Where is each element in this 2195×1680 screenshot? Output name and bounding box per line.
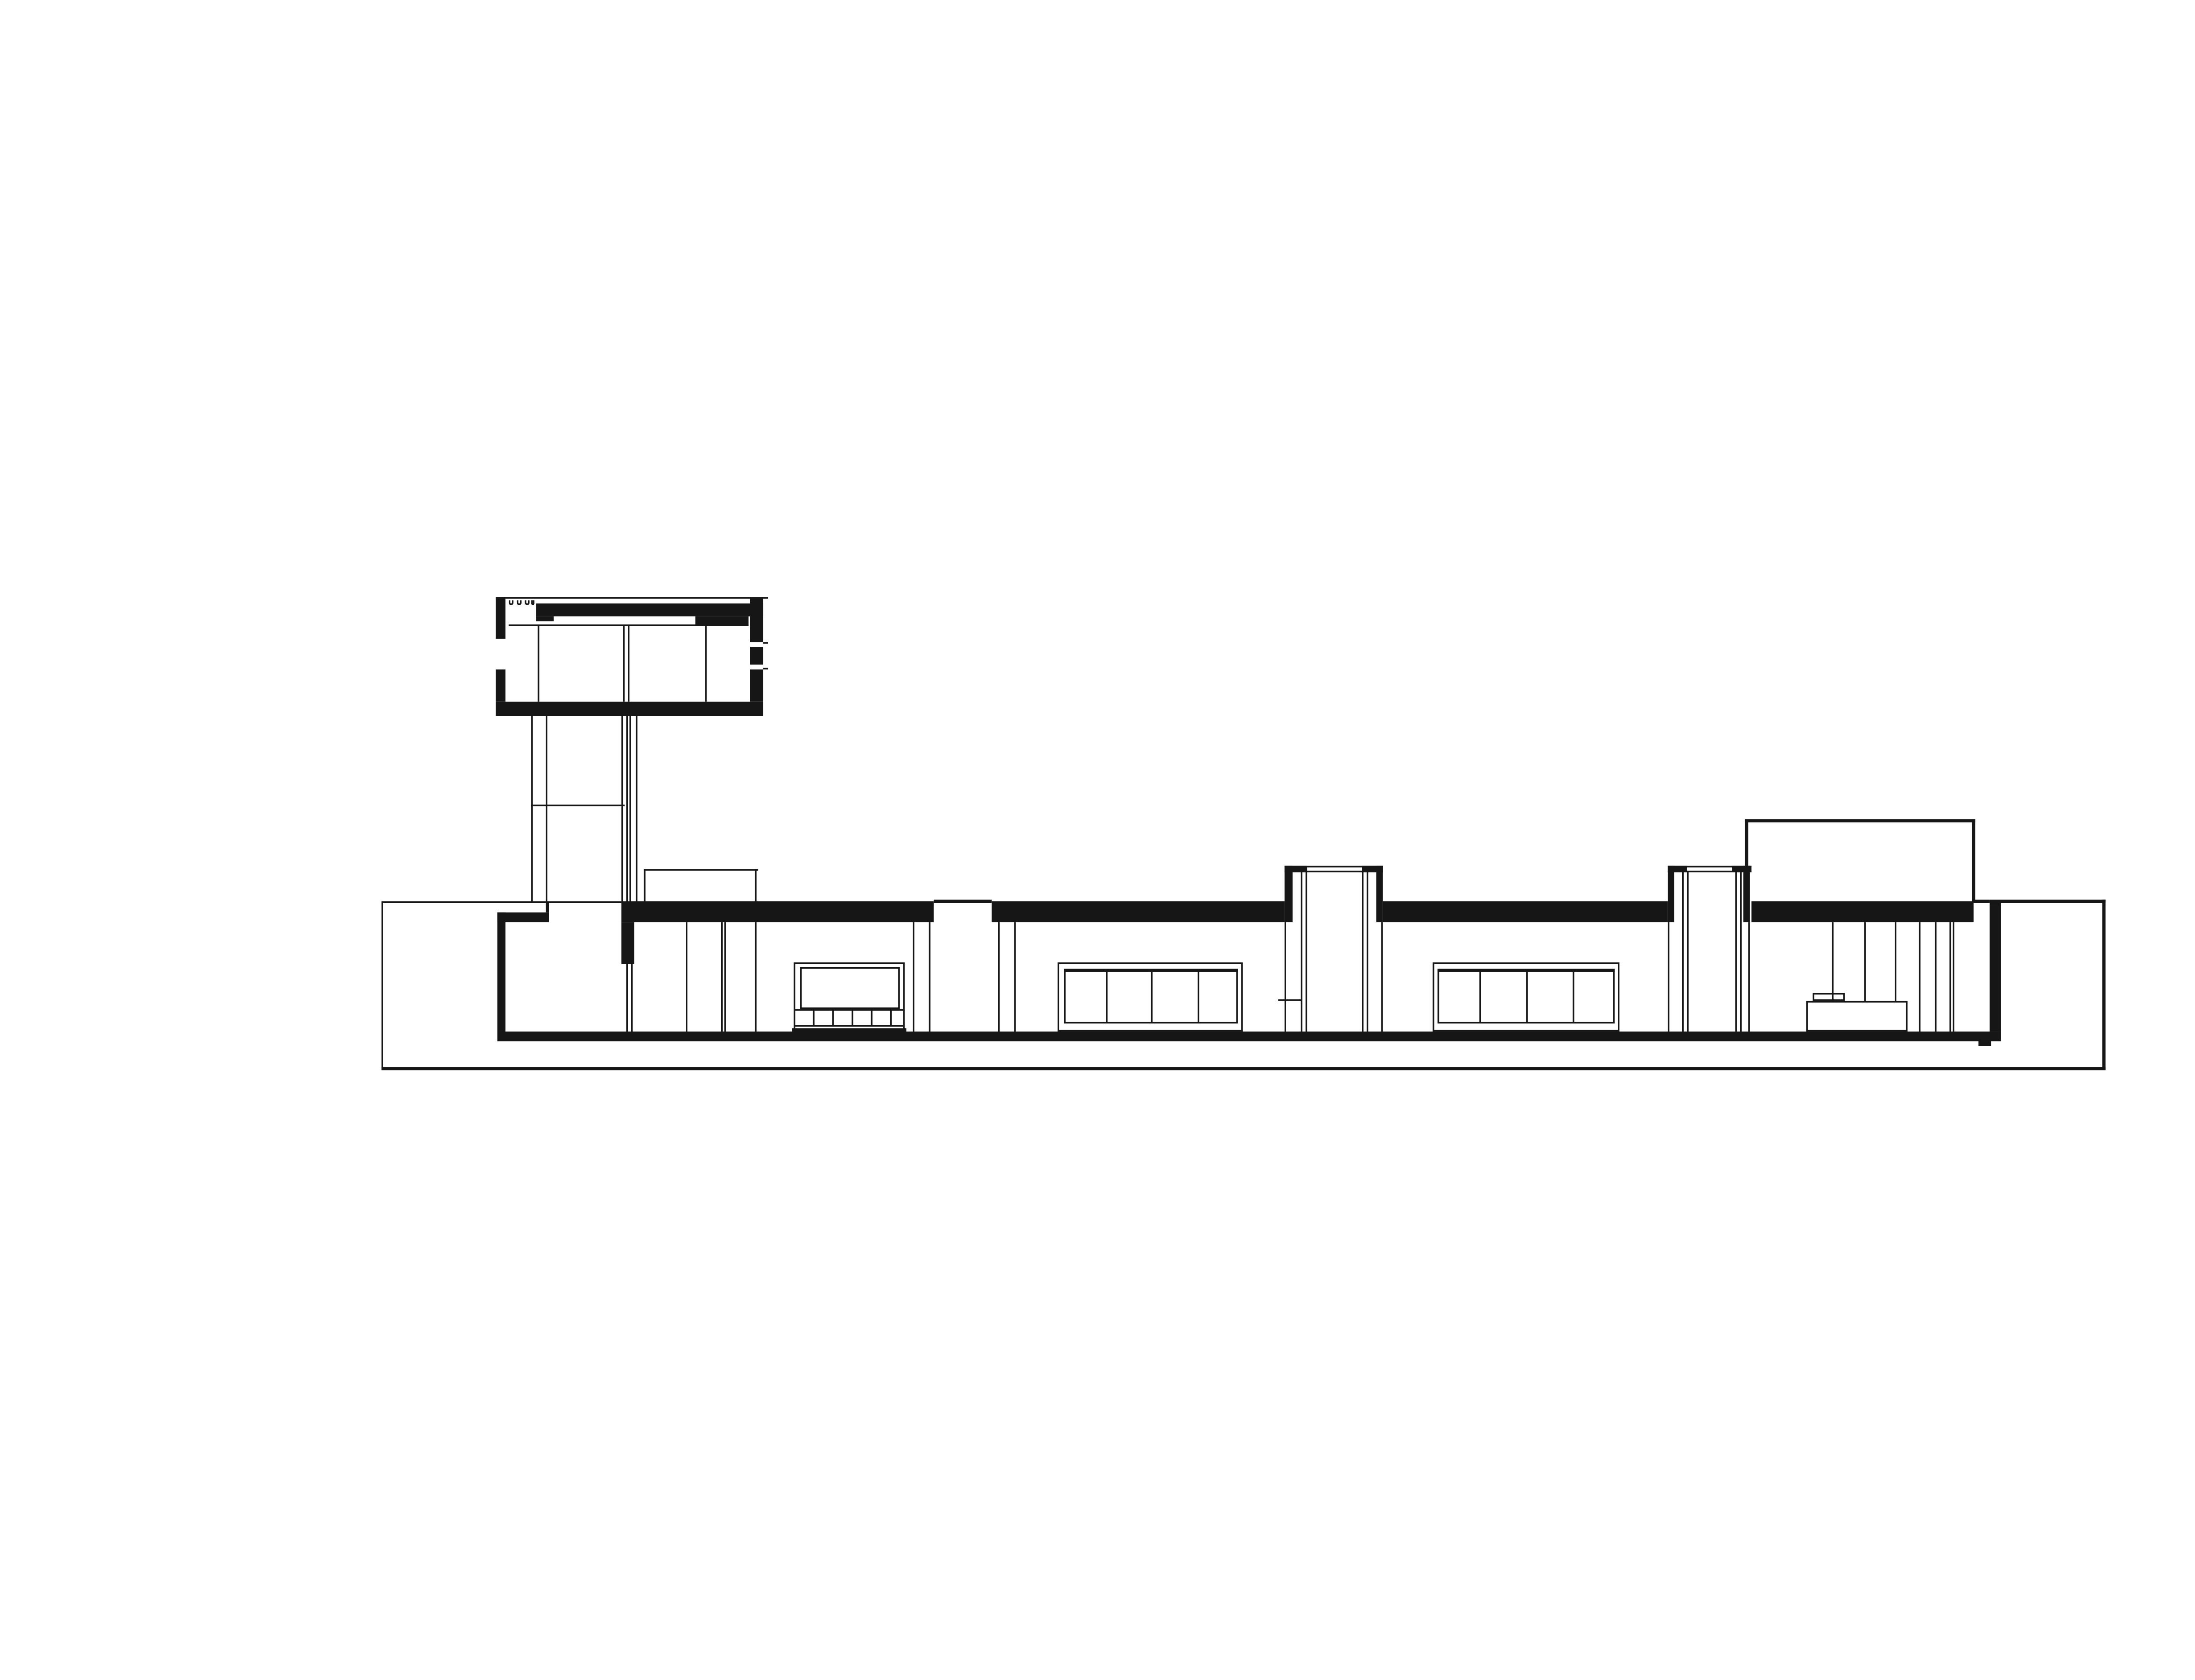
roof-bulkhead-top	[643, 869, 757, 871]
tower-wall-left-lower	[496, 669, 505, 702]
tower-roof-top-line	[496, 597, 768, 599]
roof-block-2-wall-right	[1749, 922, 1750, 1032]
upper-volume-left	[1745, 819, 1748, 865]
window-2-mullion	[1105, 972, 1107, 1023]
right-room-line-4	[1919, 922, 1921, 1032]
courtyard-wall-right	[2102, 900, 2106, 1071]
window-2-inner-frame	[1063, 968, 1237, 1023]
window-1-sill-divider	[890, 1009, 892, 1026]
patio-slot-wall-l1	[912, 922, 914, 1032]
right-room-line-2	[1864, 922, 1866, 1001]
tower-floor-slab	[496, 702, 763, 715]
right-room-line-3	[1895, 922, 1896, 1001]
tower-roof-band	[536, 604, 763, 616]
tower-joist-hook-icon	[509, 600, 513, 606]
right-room-line-6a	[1949, 922, 1950, 1032]
tower-wall-left-upper	[496, 599, 505, 639]
window-2-mullion	[1151, 972, 1153, 1023]
roof-block-2-core-r1	[1736, 872, 1738, 1031]
roof-slab-segment-1	[622, 901, 934, 922]
tower-joist-hook-icon	[517, 600, 522, 606]
upper-volume-right	[1972, 819, 1975, 903]
plinth-bottom-line	[381, 1067, 2105, 1071]
patio-slot-wall-l2	[929, 922, 931, 1032]
plinth-edge-left	[381, 901, 384, 1070]
stair-shaft-core-3	[630, 715, 632, 901]
stair-shaft-landing	[531, 804, 625, 806]
window-1-cabinet-base	[795, 1026, 903, 1027]
window-1-sill-divider	[813, 1009, 815, 1026]
stair-shaft-line-1	[531, 715, 533, 901]
roof-block-1-wall-right	[1381, 922, 1383, 1032]
exterior-wall-left	[497, 912, 505, 1031]
roof-slab-segment-3	[1383, 901, 1668, 922]
interior-partition-b2	[724, 922, 726, 1032]
roofline-over-slot	[934, 900, 991, 902]
window-1-sill-line	[795, 1009, 903, 1011]
left-bay-roof-step	[546, 901, 550, 913]
interior-partition-c	[755, 922, 757, 1032]
entrance-door-line-b	[631, 964, 633, 1031]
roof-slab-segment-2	[991, 901, 1285, 922]
roof-block-1-core-l2	[1306, 872, 1308, 1031]
roof-block-2-core-l1	[1681, 872, 1683, 1031]
stair-shaft-core-1	[622, 715, 623, 901]
window-1-sill-divider	[871, 1009, 873, 1026]
tower-wall-right-lower	[749, 669, 763, 702]
right-room-line-6b	[1952, 922, 1954, 1032]
entrance-door-line-a	[626, 964, 628, 1031]
patio-slot-wall-r2	[1014, 922, 1015, 1032]
roof-block-2-bar-left	[1668, 865, 1675, 921]
tower-core-line-b	[628, 626, 630, 702]
courtyard-wall-top	[1990, 900, 2105, 903]
window-1-sill-divider	[832, 1009, 834, 1026]
right-room-line-5	[1935, 922, 1937, 1032]
roof-block-1-bar-left	[1285, 865, 1292, 921]
stair-shaft-core-4	[635, 715, 637, 901]
tower-wall-right-upper	[749, 599, 763, 643]
roof-block-2-bar-right	[1744, 865, 1751, 921]
interior-partition-a	[686, 922, 687, 1032]
roof-block-1-core-l1	[1301, 872, 1303, 1031]
bench-top-box	[1813, 993, 1845, 1002]
window-3-head-bar	[1438, 968, 1614, 972]
window-1-sill-divider	[852, 1009, 853, 1026]
window-1-base-lip	[792, 1028, 906, 1031]
tower-roof-band-foot	[536, 616, 554, 621]
window-3-mullion	[1526, 972, 1527, 1023]
window-1-pane	[799, 967, 899, 1009]
roof-block-1-core-r1	[1362, 872, 1364, 1031]
roof-block-2-core-r2	[1741, 872, 1742, 1031]
floor-foundation-step	[1979, 1041, 1992, 1045]
floor-slab	[497, 1031, 2001, 1041]
roof-block-2-wall-left	[1668, 922, 1670, 1032]
bench	[1806, 1001, 1907, 1032]
tower-window-nib-lower	[763, 667, 768, 669]
roof-bulkhead-left	[643, 869, 645, 901]
roof-bulkhead-right	[755, 869, 757, 901]
section-drawing-canvas	[0, 0, 2195, 1680]
roof-block-2-core-l2	[1686, 872, 1688, 1031]
terrace-line-left	[381, 901, 622, 904]
entrance-lintel-wall	[622, 922, 635, 964]
roof-block-1-shelf-tick	[1277, 999, 1302, 1002]
tower-window-nib-upper	[763, 642, 768, 644]
tower-core-line-a	[623, 626, 624, 702]
window-3-mullion	[1572, 972, 1574, 1023]
roof-block-1-wall-left	[1285, 922, 1287, 1032]
window-2-mullion	[1197, 972, 1198, 1023]
upper-volume-top	[1745, 819, 1975, 822]
roof-slab-segment-4	[1752, 901, 1974, 922]
tower-wall-right-mid	[749, 647, 763, 664]
tower-joist-hook-icon	[531, 600, 536, 606]
interior-partition-b1	[721, 922, 723, 1032]
roof-block-1-bar-right	[1376, 865, 1383, 921]
window-2-head-bar	[1063, 968, 1237, 972]
stair-shaft-line-2	[545, 715, 547, 901]
roofline-right-thin	[1974, 900, 1990, 902]
roof-block-1-core-r2	[1367, 872, 1369, 1031]
right-room-line-1	[1832, 922, 1834, 1001]
patio-slot-wall-r1	[997, 922, 999, 1032]
exterior-wall-right	[1990, 903, 2001, 1031]
tower-partition-line-2	[705, 626, 707, 702]
left-bay-roof-band	[497, 912, 550, 922]
stair-shaft-core-2	[626, 715, 628, 901]
tower-joist-hook-icon	[525, 600, 530, 606]
tower-partition-line	[537, 626, 539, 702]
tower-clerestory-strip	[554, 616, 695, 619]
window-3-mullion	[1479, 972, 1481, 1023]
